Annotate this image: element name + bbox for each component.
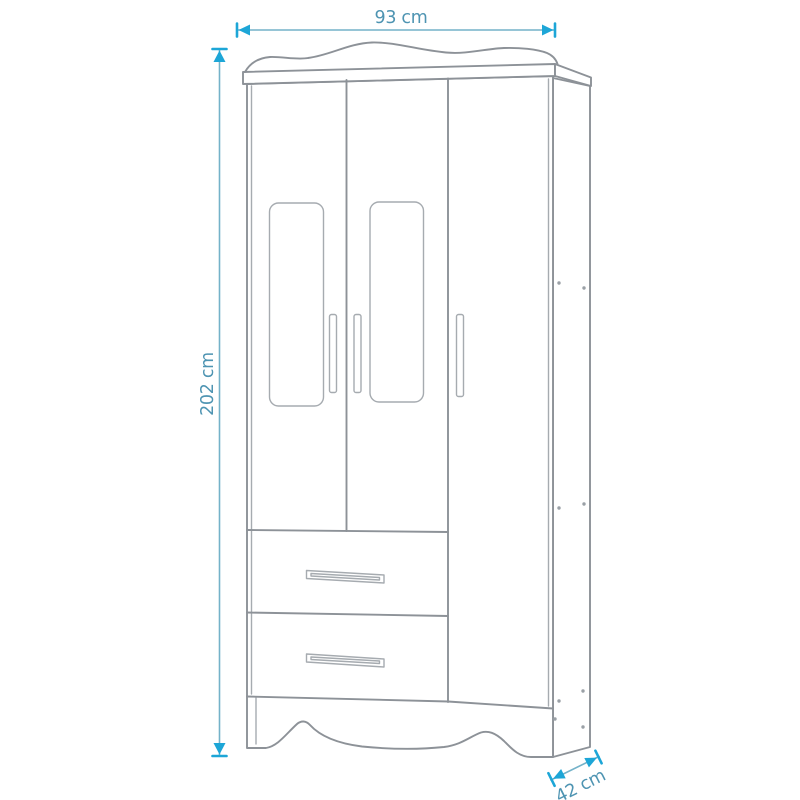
wardrobe-front-body <box>247 76 553 757</box>
wardrobe-side-panel <box>553 78 590 757</box>
height-top-arrow-icon <box>214 51 226 63</box>
height-bottom-arrow-icon <box>214 743 226 755</box>
wardrobe-drawing <box>243 42 591 757</box>
height-label: 202 cm <box>198 352 218 416</box>
width-end-arrow-icon <box>542 25 554 36</box>
wardrobe-dimension-diagram: 93 cm 202 cm 42 cm <box>0 0 800 800</box>
height-dimension: 202 cm <box>198 49 227 756</box>
depth-dimension: 42 cm <box>548 751 609 800</box>
diagram-canvas: 93 cm 202 cm 42 cm <box>0 0 800 800</box>
width-label: 93 cm <box>375 8 428 28</box>
width-start-arrow-icon <box>239 25 251 36</box>
width-dimension: 93 cm <box>237 8 555 37</box>
